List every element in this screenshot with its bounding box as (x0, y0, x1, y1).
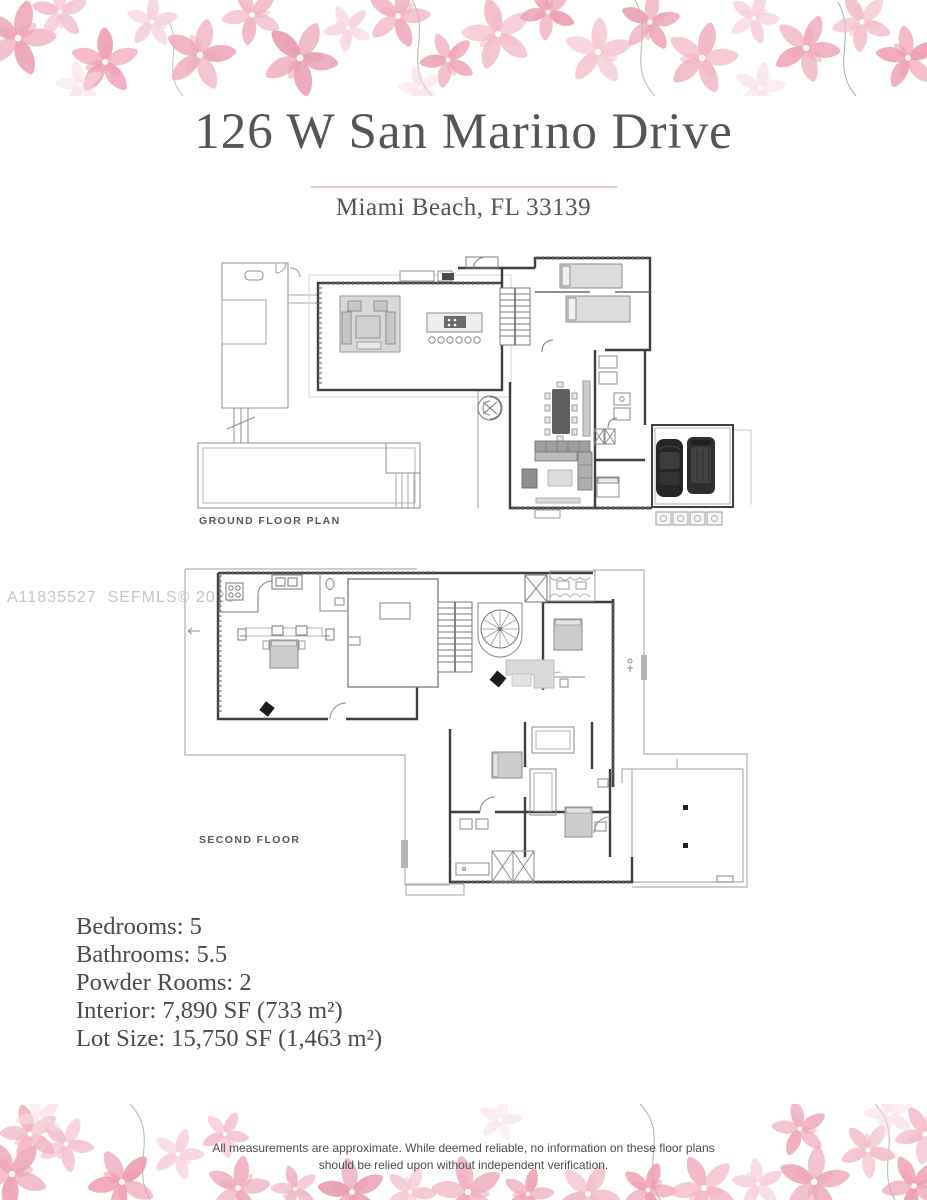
flowers-top (0, 0, 927, 96)
vines-top (168, 0, 858, 96)
detail-lot-size: Lot Size: 15,750 SF (1,463 m²) (76, 1025, 382, 1053)
floral-border-top (0, 0, 927, 96)
detail-interior-size: Interior: 7,890 SF (733 m²) (76, 997, 382, 1025)
side-door (641, 655, 647, 680)
car-suv (687, 437, 715, 494)
disclaimer-line-1: All measurements are approximate. While … (0, 1140, 927, 1157)
property-details: Bedrooms: 5 Bathrooms: 5.5 Powder Rooms:… (76, 913, 382, 1053)
detail-bedrooms: Bedrooms: 5 (76, 913, 382, 941)
second-floor-plan-label: SECOND FLOOR (199, 834, 300, 846)
terrace-gate (401, 840, 408, 868)
second-floor-plan-drawing (180, 557, 770, 897)
ground-floor-plan-label: GROUND FLOOR PLAN (199, 515, 341, 527)
flyer-page: 126 W San Marino Drive Miami Beach, FL 3… (0, 0, 927, 1200)
disclaimer: All measurements are approximate. While … (0, 1140, 927, 1174)
detail-bathrooms: Bathrooms: 5.5 (76, 941, 382, 969)
title-divider (311, 186, 617, 188)
detail-powder-rooms: Powder Rooms: 2 (76, 969, 382, 997)
spiral-staircase (478, 603, 522, 657)
car-sedan (656, 439, 683, 497)
property-address-title: 126 W San Marino Drive (0, 103, 927, 161)
ground-floor-plan-drawing (190, 250, 770, 540)
property-city-state-zip: Miami Beach, FL 33139 (0, 194, 927, 222)
disclaimer-line-2: should be relied upon without independen… (0, 1157, 927, 1174)
